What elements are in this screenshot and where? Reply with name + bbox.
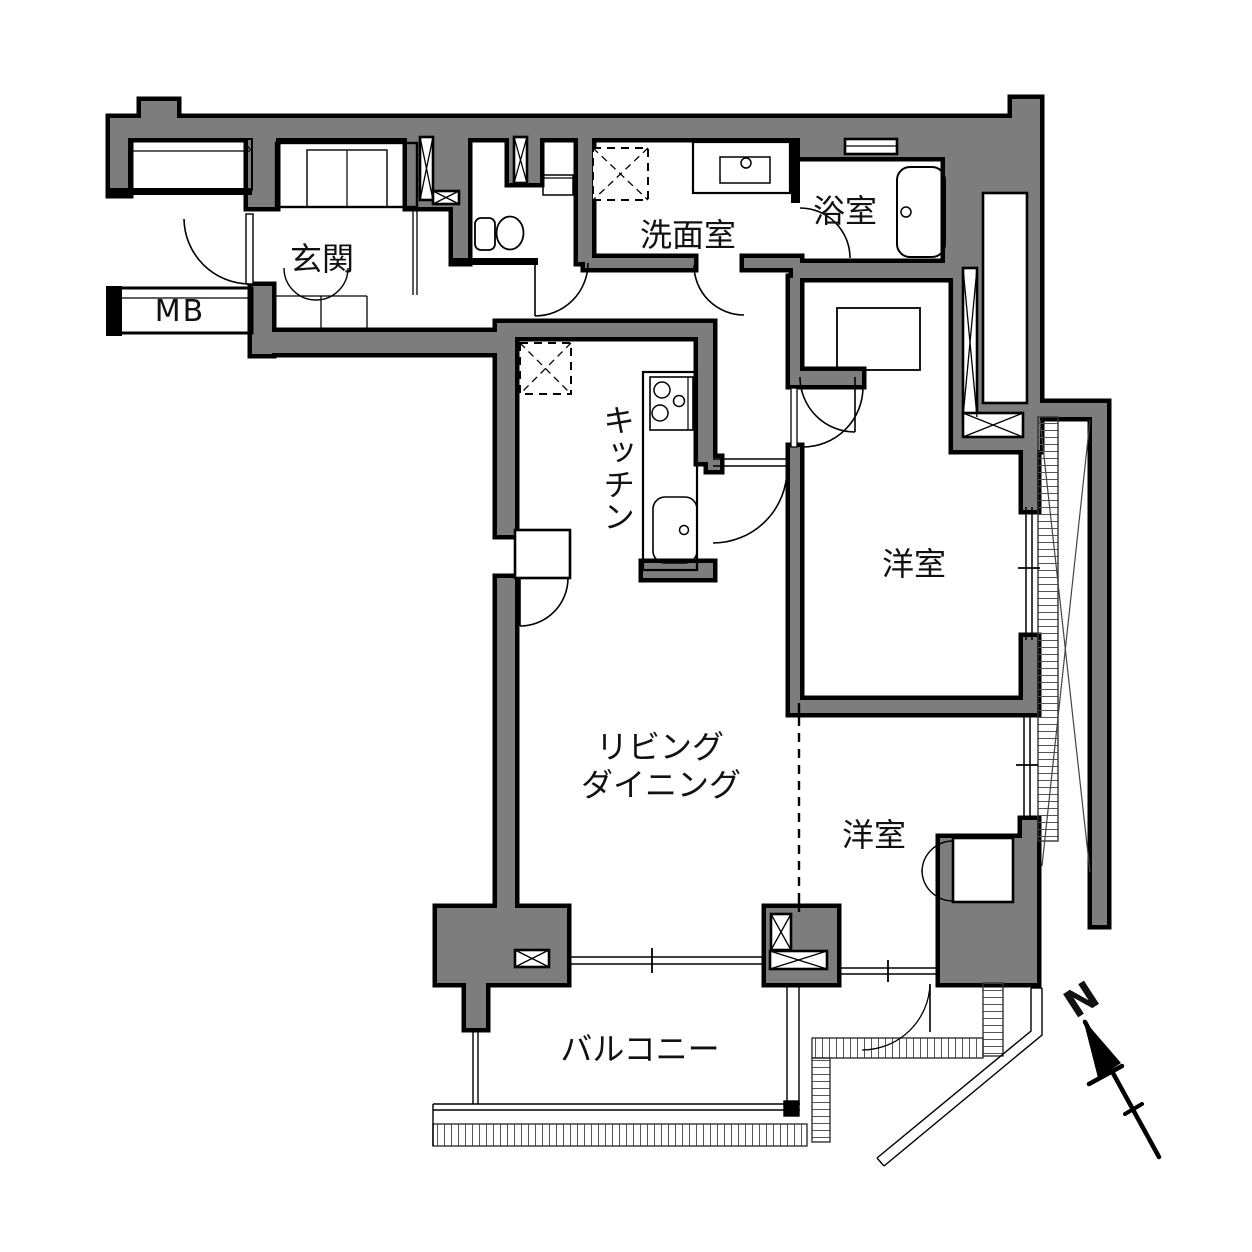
balcony-post xyxy=(784,1101,799,1116)
room-label-bedroom-east: 洋室 xyxy=(882,545,946,583)
room-label-bedroom-south: 洋室 xyxy=(842,816,906,854)
void-slot xyxy=(983,193,1027,403)
room-label-kitchen: キッチン xyxy=(598,404,636,532)
room-label-bathroom: 浴室 xyxy=(813,192,877,230)
balcony-railing-hatch xyxy=(433,1124,807,1146)
room-label-living-line1: リビング xyxy=(596,728,724,766)
room-label-living-line2: ダイニング xyxy=(581,766,741,804)
room-label-balcony: バルコニー xyxy=(560,1030,719,1068)
side-strip-hatch xyxy=(1038,417,1058,841)
walkway-hatch-east-upper xyxy=(983,983,1003,1056)
room-label-meter-box: MB xyxy=(155,294,205,329)
hall-door-frame xyxy=(515,530,570,578)
bedroom-south-closet xyxy=(953,838,1013,902)
walkway-hatch-west xyxy=(812,1058,830,1142)
room-label-washroom: 洗面室 xyxy=(640,216,736,254)
room-label-entrance: 玄関 xyxy=(290,240,354,278)
walkway-hatch-south xyxy=(812,1038,983,1058)
floor-plan-page: N 玄関 MB 洗面室 浴室 キッチン 洋室 リビング ダイニング 洋室 バルコ… xyxy=(0,0,1252,1252)
floor-plan: N 玄関 MB 洗面室 浴室 キッチン 洋室 リビング ダイニング 洋室 バルコ… xyxy=(0,0,1252,1252)
